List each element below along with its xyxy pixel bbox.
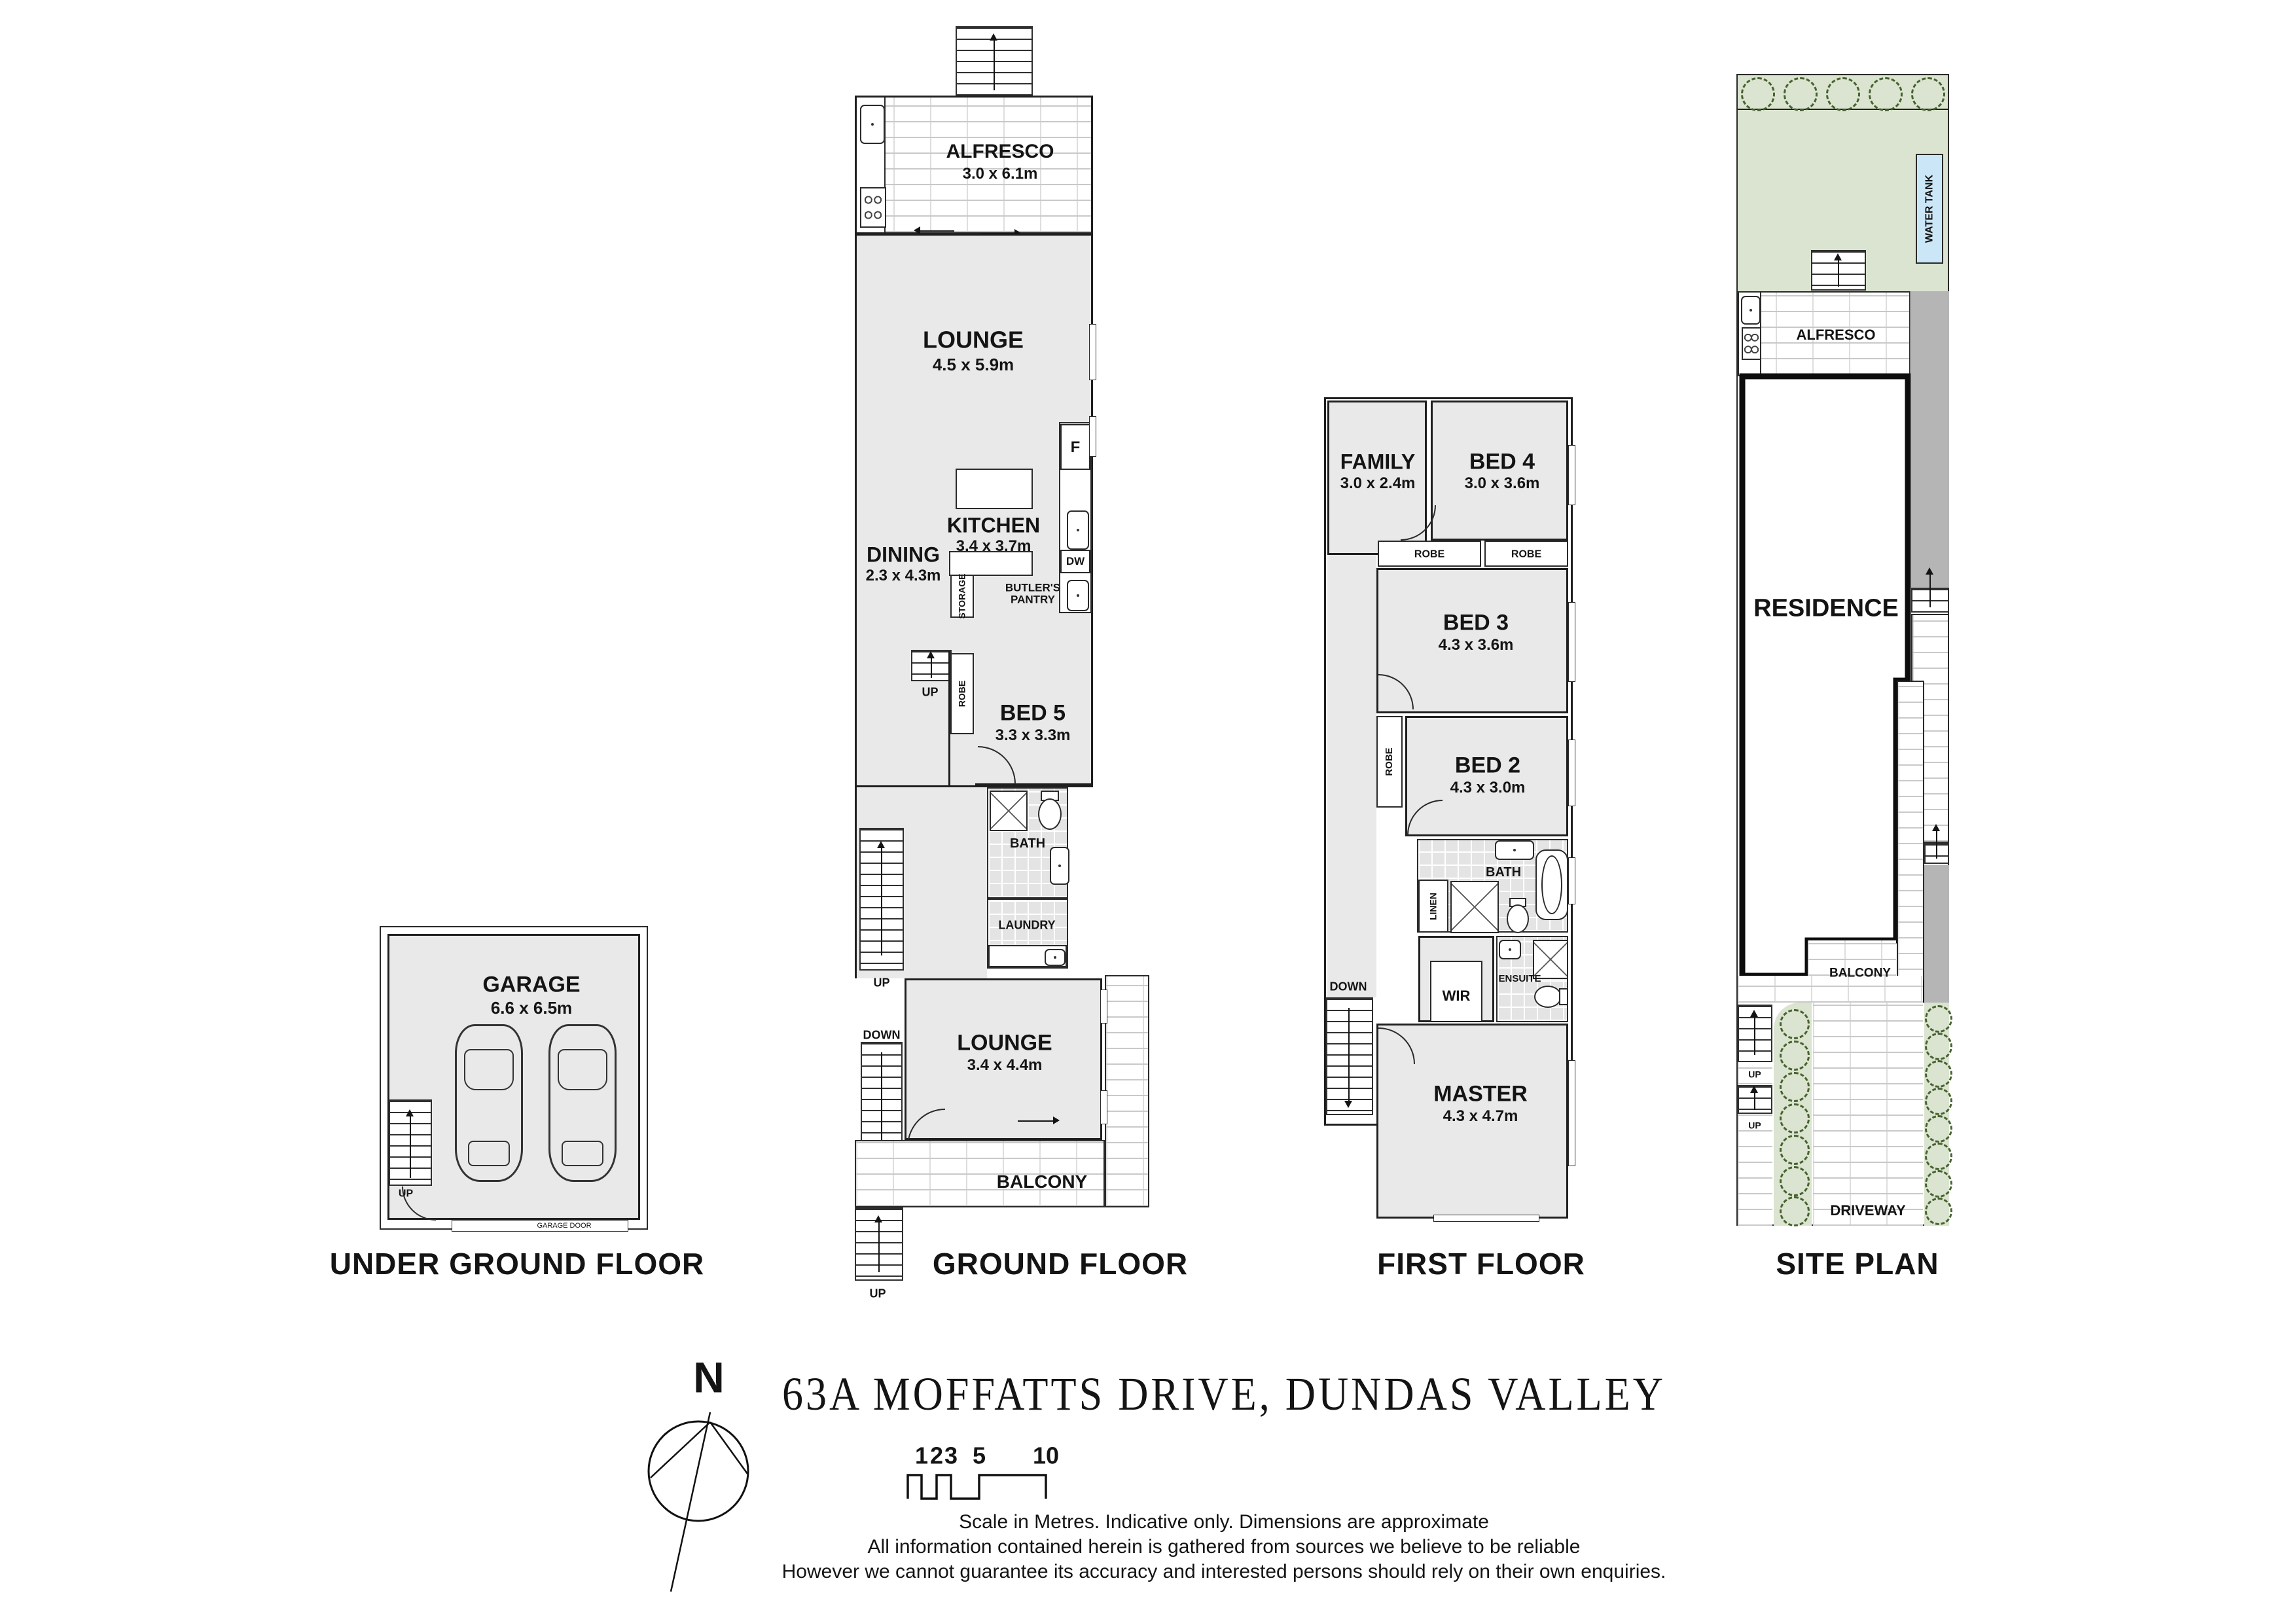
floor-title-underground: UNDER GROUND FLOOR [330, 1248, 705, 1281]
shower-icon [1450, 881, 1499, 933]
compass-north-label: N [693, 1354, 725, 1400]
ensuite-label: ENSUITE [1498, 974, 1541, 984]
butlers-pantry-label: BUTLER'S PANTRY [994, 582, 1072, 607]
up-arrow-icon [881, 844, 882, 955]
tree-icon [1925, 1170, 1952, 1198]
tree-icon [1925, 1115, 1952, 1143]
window [1100, 1090, 1107, 1124]
room-label-bed3: BED 3 [1443, 611, 1509, 635]
room-label-master: MASTER [1433, 1082, 1528, 1107]
scale-bar [903, 1466, 1060, 1505]
driveway-label: DRIVEWAY [1830, 1203, 1905, 1219]
floor-title-site: SITE PLAN [1776, 1248, 1939, 1281]
bath-label: BATH [1010, 837, 1045, 851]
floor-title-first: FIRST FLOOR [1377, 1248, 1585, 1281]
disclaimer-line1: Scale in Metres. Indicative only. Dimens… [959, 1512, 1489, 1533]
tree-icon [1741, 77, 1775, 111]
up-arrow-icon [994, 37, 995, 90]
tree-icon [1780, 1196, 1810, 1226]
up-arrow-icon [931, 654, 932, 678]
window [1568, 1060, 1575, 1166]
room-dims-bed5: 3.3 x 3.3m [996, 727, 1071, 744]
wall [948, 651, 950, 785]
up-arrow-icon [1754, 1013, 1755, 1055]
vanity-icon [1499, 940, 1521, 959]
floorplan-sheet: GARAGE 6.6 x 6.5m UP GARAGE DOOR UNDER G… [0, 0, 2296, 1623]
scale-tick-1: 1 [915, 1444, 928, 1469]
tree-icon [1925, 1198, 1952, 1225]
window [1568, 740, 1575, 806]
down-arrow-icon [1348, 1008, 1350, 1105]
sliding-door-arrow-icon [1018, 1120, 1057, 1122]
window [1433, 1215, 1539, 1222]
ff-stairs [1326, 997, 1373, 1115]
up-arrow-icon [878, 1219, 880, 1272]
kitchen-sink-icon [1067, 510, 1089, 550]
room-dims-gf-lounge2: 3.4 x 4.4m [967, 1057, 1043, 1074]
room-dims-gf-alfresco: 3.0 x 6.1m [963, 166, 1038, 183]
water-tank-label: WATER TANK [1924, 175, 1935, 243]
shower-icon [990, 791, 1028, 831]
robe-label: ROBE [957, 681, 967, 707]
laundry-label: LAUNDRY [998, 919, 1055, 931]
kitchen-island [956, 469, 1033, 509]
tree-icon [1911, 77, 1945, 111]
tree-icon [1780, 1041, 1810, 1071]
room-dims-master: 4.3 x 4.7m [1443, 1108, 1518, 1125]
room-label-gf-alfresco: ALFRESCO [946, 141, 1054, 162]
room-dims-garage: 6.6 x 6.5m [491, 999, 572, 1017]
room-label-dining: DINING [867, 544, 940, 567]
room-label-kitchen: KITCHEN [947, 514, 1040, 537]
toilet-bowl-icon [1534, 986, 1562, 1008]
toilet-bowl-icon [1038, 798, 1062, 830]
up-label: UP [869, 1287, 886, 1300]
up-arrow-icon [410, 1113, 411, 1178]
up-label: UP [1748, 1069, 1761, 1079]
tree-icon [1780, 1009, 1810, 1039]
scale-tick-10: 10 [1033, 1444, 1059, 1469]
bbq-sink-icon [860, 105, 885, 144]
tree-icon [1780, 1103, 1810, 1133]
floor-title-ground: GROUND FLOOR [933, 1248, 1188, 1281]
vanity-icon [1050, 847, 1069, 885]
tree-icon [1780, 1166, 1810, 1196]
down-label: DOWN [1330, 980, 1367, 993]
bathtub-icon [1535, 849, 1568, 920]
balcony-label: BALCONY [997, 1172, 1087, 1192]
toilet-bowl-icon [1507, 904, 1529, 933]
laundry-sink-icon [1045, 949, 1066, 966]
tree-icon [1826, 77, 1860, 111]
up-arrow-icon [1754, 1089, 1755, 1110]
tree-icon [1784, 77, 1818, 111]
page-title: 63A MOFFATTS DRIVE, DUNDAS VALLEY [782, 1368, 1666, 1419]
up-arrow-icon [1929, 571, 1931, 607]
down-label: DOWN [863, 1029, 901, 1041]
room-dims-bed3: 4.3 x 3.6m [1439, 637, 1514, 654]
car-icon [548, 1024, 617, 1182]
sliding-door-arrow-icon [916, 230, 954, 232]
tree-icon [1925, 1143, 1952, 1170]
vanity-icon [1495, 840, 1534, 860]
tree-icon [1780, 1135, 1810, 1165]
tree-icon [1925, 1060, 1952, 1088]
fridge-label: F [1071, 439, 1081, 456]
room-label-bed4: BED 4 [1469, 450, 1535, 474]
dishwasher-label: DW [1066, 556, 1085, 567]
window [1089, 416, 1096, 457]
robe-label: ROBE [1414, 548, 1444, 560]
island-bench2 [949, 551, 1033, 576]
window [1089, 324, 1096, 380]
gf-side-brick [1105, 975, 1149, 1207]
robe-label: ROBE [1511, 548, 1541, 560]
window [1100, 990, 1107, 1024]
robe-label: ROBE [1384, 747, 1395, 776]
scale-tick-5: 5 [973, 1444, 986, 1469]
down-arrow-icon [881, 1052, 882, 1144]
room-label-bed2: BED 2 [1455, 754, 1520, 778]
site-driveway [1813, 1003, 1923, 1226]
window [1568, 445, 1575, 505]
up-label: UP [1748, 1120, 1761, 1130]
car-icon [455, 1024, 523, 1182]
site-side-strip [1911, 291, 1949, 588]
room-label-gf-lounge: LOUNGE [923, 328, 1024, 353]
tree-icon [1780, 1072, 1810, 1102]
garage-door-label: GARAGE DOOR [537, 1222, 591, 1230]
cooktop-icon [1742, 327, 1761, 360]
room-label-bed5: BED 5 [1000, 702, 1066, 726]
window [1568, 602, 1575, 682]
room-label-gf-lounge2: LOUNGE [957, 1031, 1052, 1056]
room-label-garage: GARAGE [482, 973, 580, 997]
scale-tick-3: 3 [944, 1444, 958, 1469]
room-dims-bed4: 3.0 x 3.6m [1465, 475, 1540, 492]
residence-label: RESIDENCE [1753, 595, 1899, 622]
up-label: UP [873, 976, 889, 989]
up-label: UP [922, 686, 938, 698]
up-arrow-icon [1936, 827, 1937, 859]
room-dims-dining: 2.3 x 4.3m [866, 567, 941, 584]
disclaimer-line3: However we cannot guarantee its accuracy… [782, 1561, 1666, 1582]
room-dims-bed2: 4.3 x 3.0m [1450, 779, 1526, 796]
site-balcony-label: BALCONY [1829, 967, 1891, 981]
tree-icon [1925, 1033, 1952, 1060]
room-label-family: FAMILY [1340, 451, 1415, 474]
room-dims-family: 3.0 x 2.4m [1340, 475, 1416, 492]
linen-label: LINEN [1428, 893, 1438, 920]
up-arrow-icon [1838, 257, 1839, 287]
site-alfresco-label: ALFRESCO [1797, 327, 1876, 343]
tree-icon [1925, 1088, 1952, 1115]
site-path-right2 [1897, 681, 1924, 1003]
window [1568, 857, 1575, 904]
bbq-sink-icon [1741, 296, 1761, 325]
wir-label: WIR [1443, 988, 1471, 1004]
cooktop-icon [860, 187, 886, 228]
toilet-icon [1559, 988, 1568, 1005]
site-side-strip2 [1924, 865, 1949, 1003]
scale-tick-2: 2 [930, 1444, 943, 1469]
bath-label: BATH [1486, 866, 1521, 880]
tree-icon [1869, 77, 1903, 111]
storage-label: STORAGE [957, 574, 967, 619]
disclaimer-line2: All information contained herein is gath… [868, 1537, 1581, 1558]
room-dims-gf-lounge: 4.5 x 5.9m [933, 355, 1014, 374]
tree-icon [1925, 1005, 1952, 1033]
